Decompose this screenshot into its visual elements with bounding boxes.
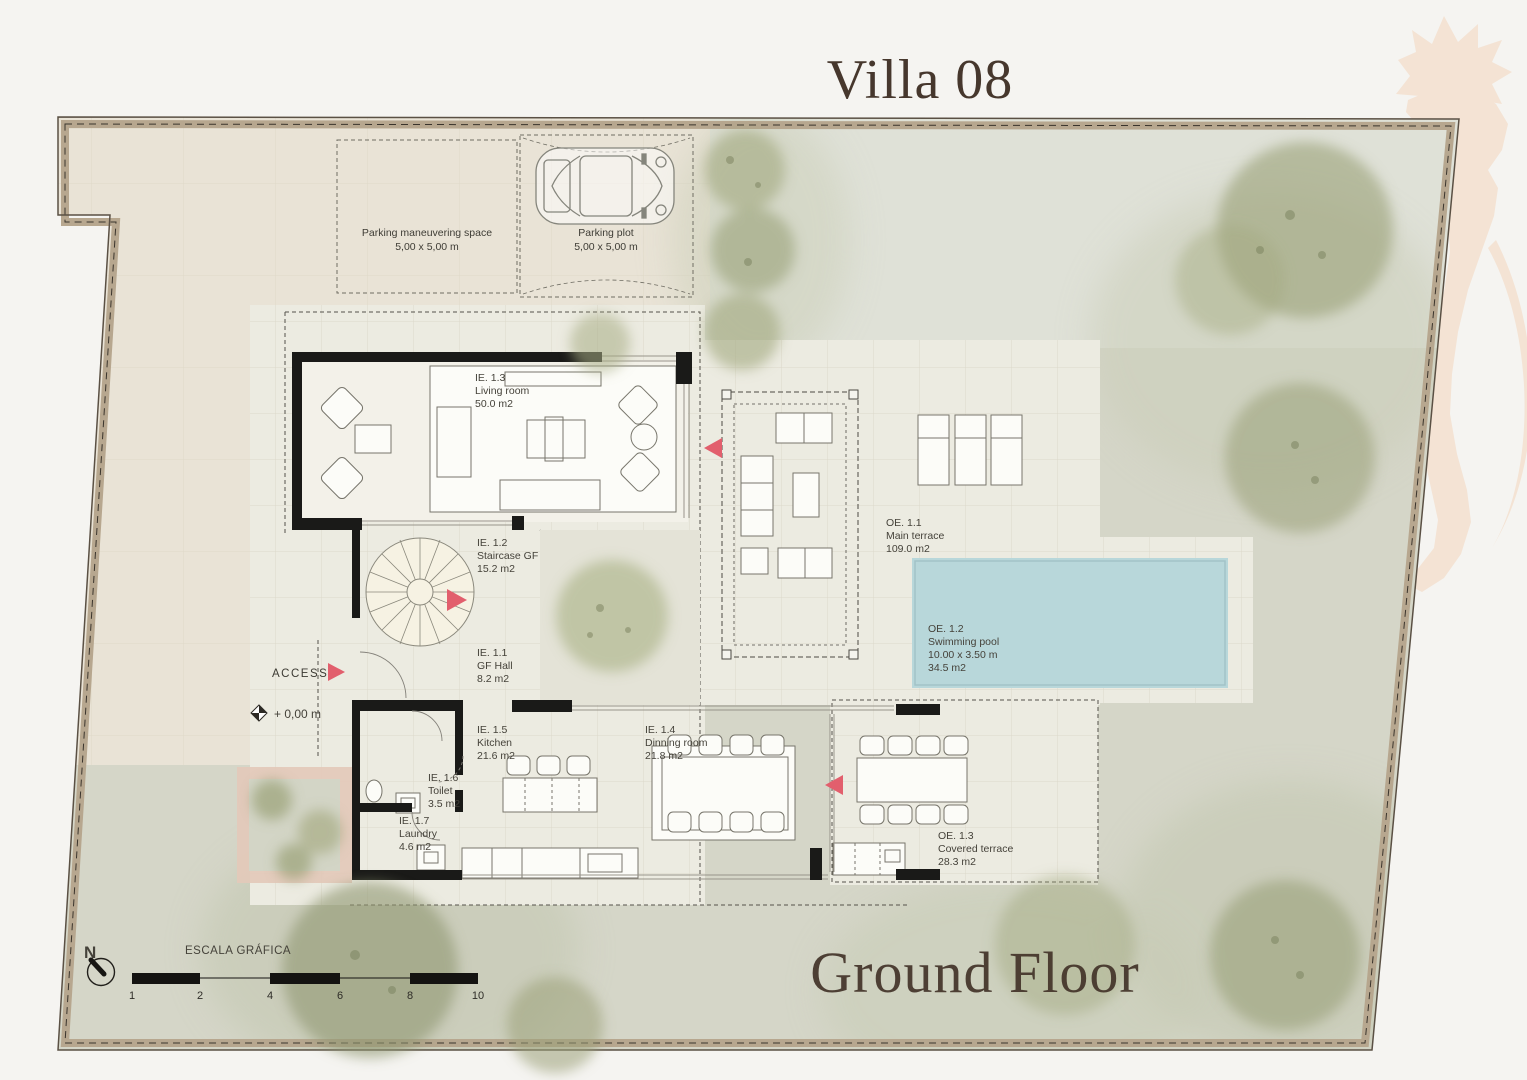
chair: [761, 812, 784, 832]
floor-plan-drawing: Parking maneuvering space 5,00 x 5,00 m …: [0, 0, 1527, 1080]
wc: [366, 780, 382, 802]
chair: [730, 812, 753, 832]
svg-text:21.6 m2: 21.6 m2: [477, 750, 515, 762]
chair: [761, 735, 784, 755]
chair: [888, 736, 912, 755]
svg-text:IE. 1.4: IE. 1.4: [645, 724, 676, 736]
parking-plot-size: 5,00 x 5,00 m: [574, 241, 638, 253]
chair: [860, 805, 884, 824]
svg-text:8.2 m2: 8.2 m2: [477, 673, 509, 685]
svg-text:OE. 1.3: OE. 1.3: [938, 830, 974, 842]
svg-text:Covered terrace: Covered terrace: [938, 843, 1013, 855]
svg-text:IE. 1.5: IE. 1.5: [477, 724, 508, 736]
scale-bar-title: ESCALA GRÁFICA: [185, 944, 291, 957]
sofa-horizontal: [500, 480, 600, 510]
chair: [730, 735, 753, 755]
scale-tick: 6: [337, 990, 343, 1002]
svg-text:Kitchen: Kitchen: [477, 737, 512, 749]
svg-text:4.6 m2: 4.6 m2: [399, 841, 431, 853]
terrace-side-table: [741, 548, 768, 574]
svg-text:109.0 m2: 109.0 m2: [886, 543, 930, 555]
kitchen-island: [503, 778, 597, 812]
terrace-sofa-long: [741, 456, 773, 536]
outdoor-dining-table: [857, 758, 967, 802]
svg-text:OE. 1.1: OE. 1.1: [886, 517, 922, 529]
svg-text:IE. 1.2: IE. 1.2: [477, 537, 508, 549]
svg-text:Toilet: Toilet: [428, 785, 453, 797]
svg-text:Living room: Living room: [475, 385, 530, 397]
stool: [567, 756, 590, 775]
parking-maneuvering-label: Parking maneuvering space: [362, 227, 492, 239]
svg-text:50.0 m2: 50.0 m2: [475, 398, 513, 410]
scale-tick: 8: [407, 990, 413, 1002]
spiral-staircase: [366, 538, 474, 646]
access-label: ACCESS: [272, 668, 328, 680]
svg-text:IE. 1.6: IE. 1.6: [428, 772, 459, 784]
floor-plan-page: Parking maneuvering space 5,00 x 5,00 m …: [0, 0, 1527, 1080]
svg-text:Laundry: Laundry: [399, 828, 438, 840]
parking-maneuvering-size: 5,00 x 5,00 m: [395, 241, 459, 253]
svg-text:21.8 m2: 21.8 m2: [645, 750, 683, 762]
svg-text:Dinning room: Dinning room: [645, 737, 708, 749]
svg-text:OE. 1.2: OE. 1.2: [928, 623, 964, 635]
svg-text:Staircase GF: Staircase GF: [477, 550, 538, 562]
bbq-counter: [833, 843, 905, 875]
svg-text:15.2 m2: 15.2 m2: [477, 563, 515, 575]
floor-title: Ground Floor: [810, 940, 1139, 1005]
stool: [537, 756, 560, 775]
page-title: Villa 08: [827, 49, 1014, 111]
svg-text:Swimming pool: Swimming pool: [928, 636, 999, 648]
svg-text:GF Hall: GF Hall: [477, 660, 513, 672]
svg-text:Main terrace: Main terrace: [886, 530, 945, 542]
sofa-vertical: [437, 407, 471, 477]
chair: [699, 812, 722, 832]
svg-text:3.5 m2: 3.5 m2: [428, 798, 460, 810]
scale-tick: 1: [129, 990, 135, 1002]
chair: [916, 736, 940, 755]
kitchen-counter: [462, 848, 638, 878]
svg-text:28.3 m2: 28.3 m2: [938, 856, 976, 868]
hall-label: IE. 1.1 GF Hall 8.2 m2: [477, 647, 513, 685]
level-label: + 0,00 m: [274, 707, 321, 721]
svg-text:IE. 1.1: IE. 1.1: [477, 647, 508, 659]
scale-tick: 2: [197, 990, 203, 1002]
svg-text:IE. 1.7: IE. 1.7: [399, 815, 430, 827]
svg-text:34.5 m2: 34.5 m2: [928, 662, 966, 674]
parking-plot-label: Parking plot: [578, 227, 634, 239]
svg-text:IE. 1.3: IE. 1.3: [475, 372, 506, 384]
chair: [916, 805, 940, 824]
chair: [944, 736, 968, 755]
scale-tick: 10: [472, 990, 484, 1002]
svg-text:10.00 x 3.50 m: 10.00 x 3.50 m: [928, 649, 998, 661]
scale-tick: 4: [267, 990, 273, 1002]
sideboard: [505, 372, 601, 386]
terrace-coffee-table: [793, 473, 819, 517]
chair: [944, 805, 968, 824]
sun-lounger: [918, 415, 949, 485]
sun-lounger: [955, 415, 986, 485]
round-table: [631, 424, 657, 450]
chair: [888, 805, 912, 824]
car-icon: [536, 148, 674, 224]
sun-lounger: [991, 415, 1022, 485]
side-table: [355, 425, 391, 453]
coffee-table: [527, 420, 585, 458]
chair: [668, 812, 691, 832]
chair: [860, 736, 884, 755]
